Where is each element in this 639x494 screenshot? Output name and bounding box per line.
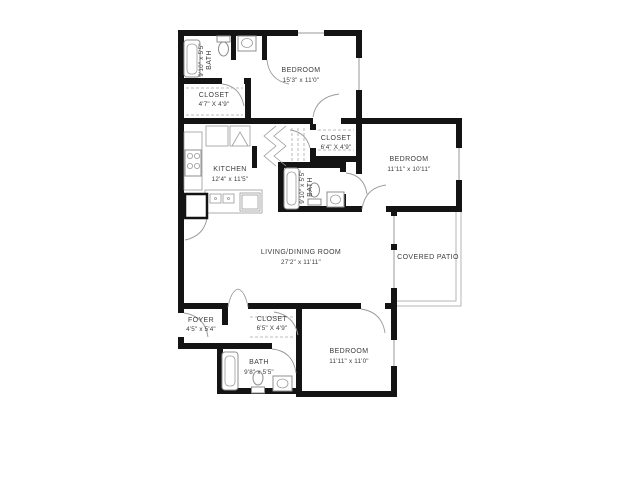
kitchen-island (205, 190, 262, 213)
door-arc (313, 94, 339, 117)
room-dims-foyer: 4'5" x 5'4" (186, 326, 216, 333)
room-label-kitchen: KITCHEN (213, 166, 247, 173)
door-arc (272, 349, 296, 373)
room-label-living-dining: LIVING/DINING ROOM (261, 249, 341, 256)
dishwasher (240, 193, 260, 211)
room-dims-bedroom-bottom: 11'11" x 11'0" (329, 358, 368, 365)
utility-shelves (292, 128, 304, 162)
room-dims-kitchen: 12'4" x 11'5" (212, 176, 249, 183)
room-dims-bath-bottom: 9'8" x 5'5" (244, 369, 274, 376)
room-dims-closet-top: 4'7" X 4'9" (199, 101, 230, 108)
room-label-bath-mid: BATH (307, 177, 314, 197)
refrigerator (206, 126, 250, 146)
room-label-bedroom-top: BEDROOM (282, 67, 321, 74)
room-label-covered-patio: COVERED PATIO (397, 254, 459, 261)
toilet (217, 36, 230, 56)
fixtures (184, 36, 354, 393)
door-arc (290, 130, 310, 148)
bifold-door (264, 126, 286, 166)
window (391, 216, 397, 244)
room-dims-bath-top: 9'10" x 5'5" (198, 43, 205, 76)
room-label-bedroom-right: BEDROOM (390, 156, 429, 163)
pantry-closet (185, 194, 207, 218)
bathtub (222, 352, 238, 390)
door-arc (346, 173, 367, 194)
door-arc (361, 309, 385, 333)
walls (178, 30, 462, 397)
room-label-closet-bottom: CLOSET (257, 316, 288, 323)
kitchen-sink (210, 194, 234, 203)
bathtub (284, 168, 299, 209)
window (391, 340, 397, 366)
room-label-bath-top: BATH (206, 50, 213, 70)
window (456, 148, 462, 180)
room-label-foyer: FOYER (188, 317, 214, 324)
window (356, 58, 362, 90)
sink (238, 36, 256, 51)
room-label-closet-top: CLOSET (199, 92, 230, 99)
room-label-bath-bottom: BATH (249, 359, 269, 366)
sink (327, 192, 344, 207)
room-label-bedroom-bottom: BEDROOM (330, 348, 369, 355)
room-dims-bedroom-top: 15'3" x 11'0" (283, 77, 320, 84)
pantry-door-arc (185, 218, 207, 240)
floor-plan-page: BATH 9'10" x 5'5" CLOSET 4'7" X 4'9" BED… (0, 0, 639, 494)
room-dims-bath-mid: 9'10" x 5'5" (299, 170, 306, 203)
sliding-door-window (391, 250, 397, 288)
stove (185, 150, 201, 176)
room-dims-bedroom-right: 11'11" x 10'11" (387, 166, 430, 173)
window (298, 30, 324, 36)
room-dims-living-dining: 27'2" x 11'11" (281, 259, 321, 266)
room-dims-closet-mid: 6'4" X 4'9" (321, 144, 352, 151)
room-label-closet-mid: CLOSET (321, 135, 352, 142)
windows (298, 30, 462, 366)
room-dims-closet-bottom: 6'5" X 4'9" (257, 325, 288, 332)
floor-plan: BATH 9'10" x 5'5" CLOSET 4'7" X 4'9" BED… (0, 0, 639, 494)
sink (273, 376, 292, 391)
